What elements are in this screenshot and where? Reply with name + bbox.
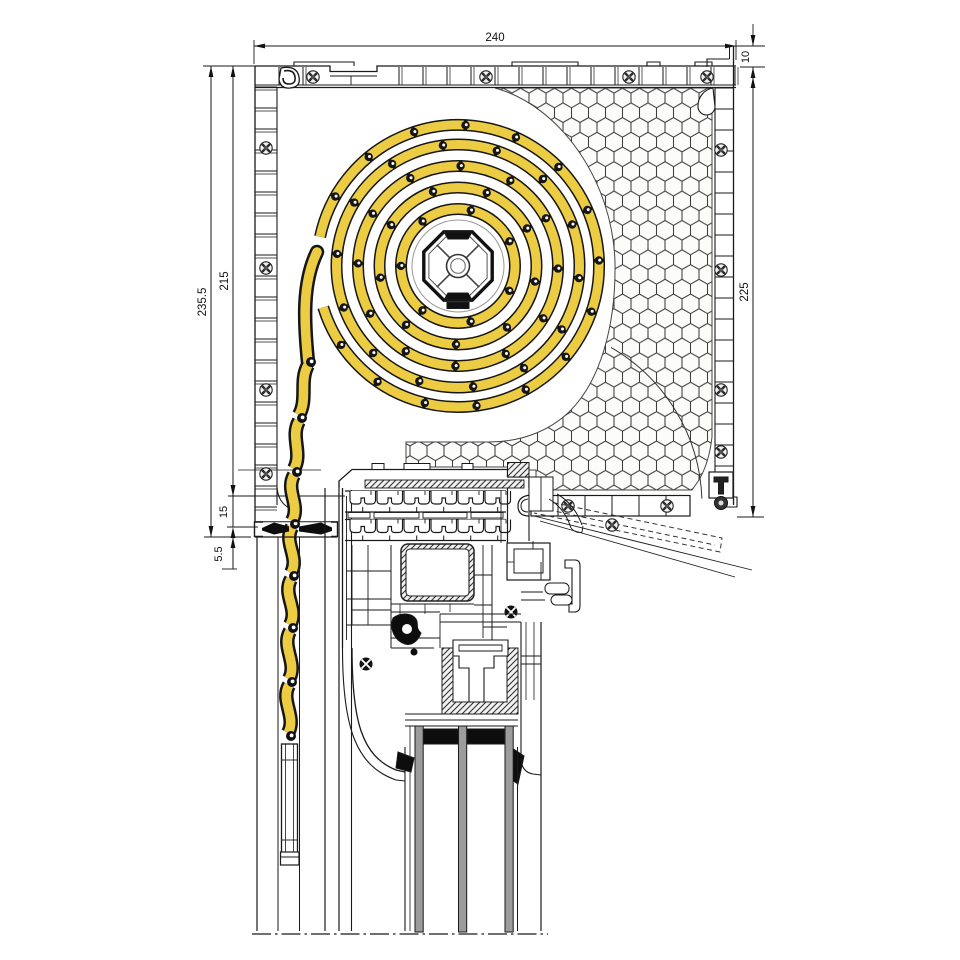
svg-text:5.5: 5.5 [213,546,225,561]
svg-text:15: 15 [218,506,230,518]
svg-text:10: 10 [740,51,752,63]
svg-text:235.5: 235.5 [197,288,209,317]
svg-text:240: 240 [485,32,504,44]
svg-text:215: 215 [219,271,231,290]
svg-text:225: 225 [739,282,751,301]
